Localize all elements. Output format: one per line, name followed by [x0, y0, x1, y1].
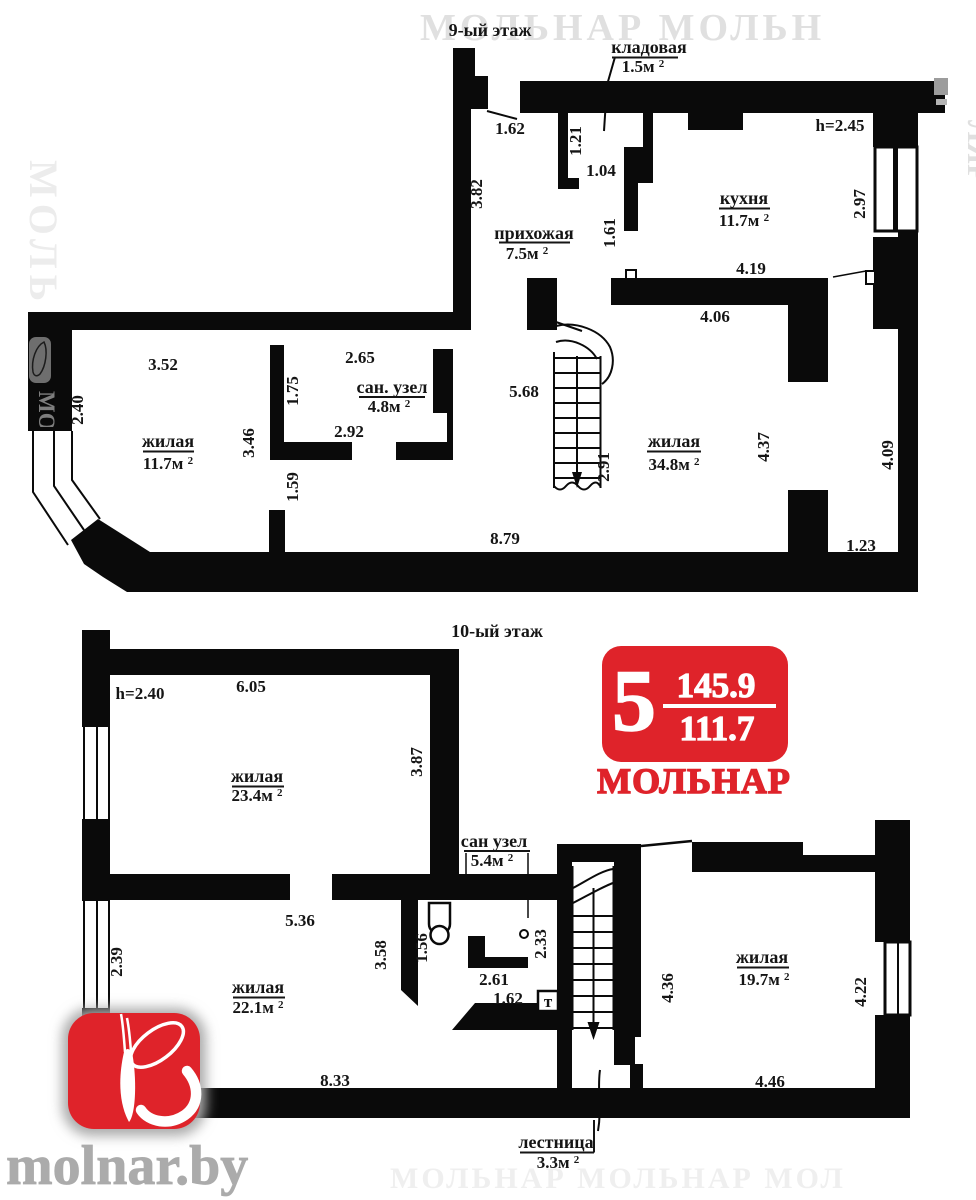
- svg-text:3.46: 3.46: [239, 428, 258, 458]
- svg-text:2.97: 2.97: [850, 189, 869, 219]
- svg-text:кухня: кухня: [720, 188, 768, 208]
- svg-text:2.61: 2.61: [479, 970, 509, 989]
- svg-text:МОЛЬНАР МОЛЬНАР МОЛ: МОЛЬНАР МОЛЬНАР МОЛ: [390, 1162, 846, 1195]
- svg-text:19.7м 2: 19.7м 2: [738, 970, 790, 989]
- svg-text:2.65: 2.65: [345, 348, 375, 367]
- svg-text:5: 5: [612, 653, 656, 750]
- svg-text:1.23: 1.23: [846, 536, 876, 555]
- svg-text:4.37: 4.37: [754, 432, 773, 462]
- svg-text:1.62: 1.62: [493, 989, 523, 1008]
- svg-text:111.7: 111.7: [680, 709, 755, 748]
- svg-text:ЛЯР: ЛЯР: [961, 120, 976, 182]
- svg-text:11.7м 2: 11.7м 2: [143, 454, 194, 473]
- svg-text:1.21: 1.21: [566, 126, 585, 156]
- svg-text:1.04: 1.04: [586, 161, 616, 180]
- svg-text:2.39: 2.39: [107, 947, 126, 977]
- svg-text:1.62: 1.62: [495, 119, 525, 138]
- svg-text:3.87: 3.87: [407, 747, 426, 777]
- svg-text:прихожая: прихожая: [494, 223, 574, 243]
- svg-text:11.7м 2: 11.7м 2: [719, 211, 770, 230]
- svg-text:h=2.40: h=2.40: [116, 684, 165, 703]
- svg-text:4.06: 4.06: [700, 307, 730, 326]
- svg-text:жилая: жилая: [231, 766, 284, 786]
- svg-text:1.56: 1.56: [412, 933, 431, 963]
- svg-text:2.40: 2.40: [68, 395, 87, 425]
- svg-text:2.92: 2.92: [334, 422, 364, 441]
- svg-text:8.79: 8.79: [490, 529, 520, 548]
- svg-text:сан узел: сан узел: [461, 831, 527, 851]
- svg-text:1.5м 2: 1.5м 2: [622, 57, 665, 76]
- svg-text:4.09: 4.09: [878, 440, 897, 470]
- svg-text:4.19: 4.19: [736, 259, 766, 278]
- svg-text:10-ый этаж: 10-ый этаж: [451, 621, 544, 641]
- svg-text:МО: МО: [34, 391, 59, 431]
- svg-text:т: т: [544, 992, 553, 1011]
- svg-text:6.05: 6.05: [236, 677, 266, 696]
- svg-text:4.22: 4.22: [851, 977, 870, 1007]
- svg-text:2.91: 2.91: [594, 452, 613, 482]
- svg-text:1.59: 1.59: [283, 472, 302, 502]
- svg-text:22.1м 2: 22.1м 2: [232, 998, 284, 1017]
- svg-text:h=2.45: h=2.45: [816, 116, 865, 135]
- svg-text:жилая: жилая: [142, 431, 195, 451]
- svg-text:5.68: 5.68: [509, 382, 539, 401]
- svg-text:жилая: жилая: [232, 977, 285, 997]
- svg-text:3.82: 3.82: [467, 179, 486, 209]
- svg-text:МОЛЬНАР: МОЛЬНАР: [597, 761, 791, 801]
- svg-text:5.4м 2: 5.4м 2: [471, 851, 514, 870]
- svg-text:1.75: 1.75: [283, 376, 302, 406]
- svg-text:жилая: жилая: [648, 431, 701, 451]
- svg-text:7.5м 2: 7.5м 2: [506, 244, 549, 263]
- svg-text:145.9: 145.9: [677, 666, 756, 705]
- svg-text:3.3м 2: 3.3м 2: [537, 1153, 580, 1172]
- svg-text:3.52: 3.52: [148, 355, 178, 374]
- svg-text:1.61: 1.61: [600, 218, 619, 248]
- svg-text:molnar.by: molnar.by: [6, 1135, 248, 1197]
- svg-text:4.46: 4.46: [755, 1072, 785, 1091]
- svg-text:34.8м 2: 34.8м 2: [648, 455, 700, 474]
- svg-text:9-ый этаж: 9-ый этаж: [449, 20, 533, 40]
- svg-text:23.4м 2: 23.4м 2: [231, 786, 283, 805]
- svg-text:лестница: лестница: [518, 1132, 593, 1152]
- svg-text:3.58: 3.58: [371, 940, 390, 970]
- svg-text:жилая: жилая: [736, 947, 789, 967]
- svg-text:МОЛЬ: МОЛЬ: [21, 160, 66, 307]
- svg-text:4.8м 2: 4.8м 2: [368, 397, 411, 416]
- svg-text:4.36: 4.36: [658, 973, 677, 1003]
- svg-text:8.33: 8.33: [320, 1071, 350, 1090]
- svg-text:сан. узел: сан. узел: [357, 377, 428, 397]
- svg-text:кладовая: кладовая: [611, 37, 687, 57]
- svg-text:5.36: 5.36: [285, 911, 315, 930]
- svg-text:2.33: 2.33: [531, 929, 550, 959]
